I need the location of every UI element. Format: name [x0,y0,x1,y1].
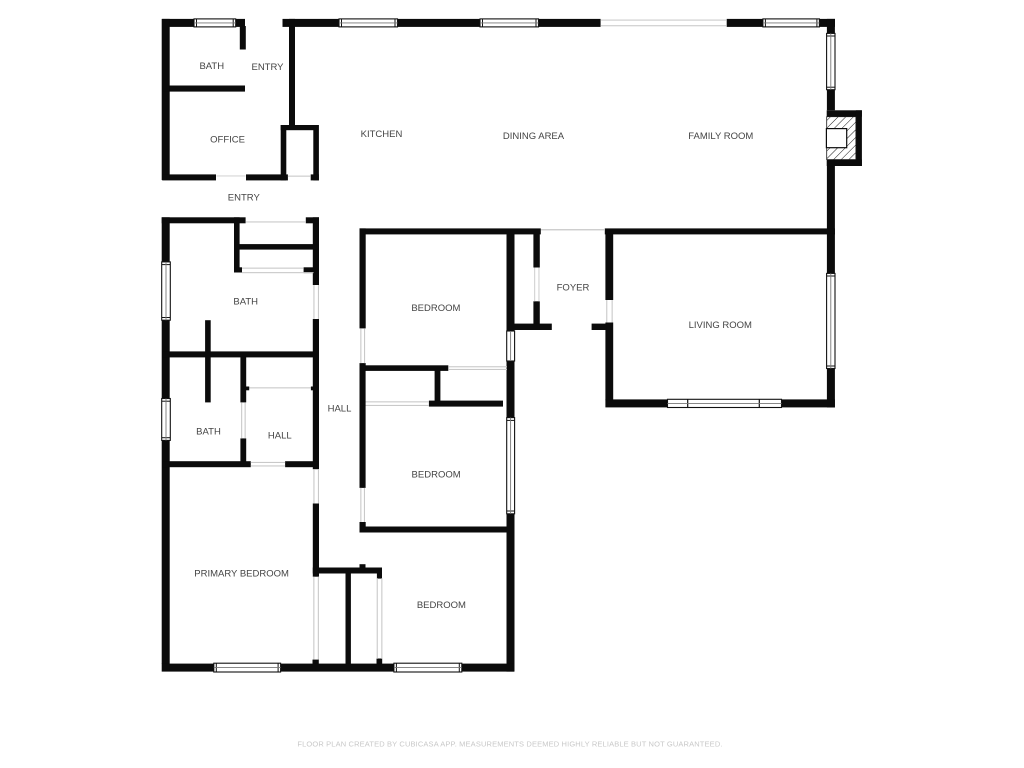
svg-text:ENTRY: ENTRY [228,192,261,203]
svg-text:FAMILY ROOM: FAMILY ROOM [688,131,753,142]
svg-text:BATH: BATH [233,296,258,307]
svg-text:BEDROOM: BEDROOM [412,469,461,480]
svg-text:FLOOR PLAN CREATED BY CUBICASA: FLOOR PLAN CREATED BY CUBICASA APP. MEAS… [297,740,722,749]
svg-text:FOYER: FOYER [557,283,590,294]
svg-text:BEDROOM: BEDROOM [417,600,466,611]
svg-text:HALL: HALL [268,430,292,441]
svg-text:PRIMARY BEDROOM: PRIMARY BEDROOM [194,569,289,580]
svg-text:ENTRY: ENTRY [251,62,284,73]
svg-text:OFFICE: OFFICE [210,135,245,146]
svg-text:BEDROOM: BEDROOM [411,303,460,314]
svg-text:LIVING ROOM: LIVING ROOM [689,320,752,331]
svg-text:BATH: BATH [196,427,221,438]
svg-text:KITCHEN: KITCHEN [361,129,403,140]
svg-text:DINING AREA: DINING AREA [503,131,565,142]
svg-text:BATH: BATH [199,61,224,72]
svg-text:HALL: HALL [328,403,352,414]
